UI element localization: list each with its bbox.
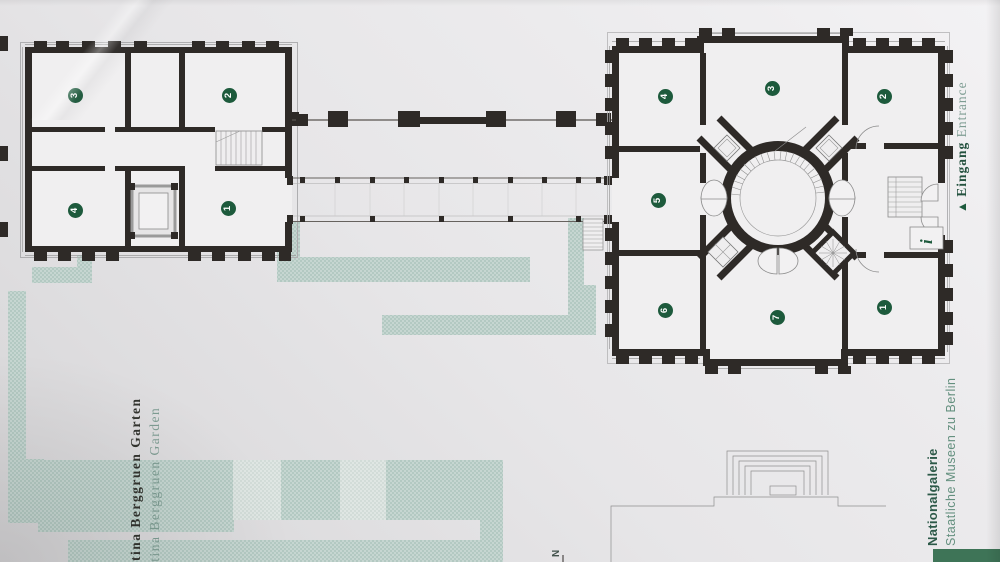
entrance-label: ▲ Eingang Entrance (954, 81, 970, 213)
north-label: N (551, 550, 562, 557)
room-marker: 3 (765, 81, 780, 96)
room-marker: 7 (770, 310, 785, 325)
west-wing (0, 36, 299, 261)
legend-banner (933, 549, 1000, 562)
garden-paths (8, 218, 596, 562)
elevator (128, 183, 178, 239)
room-marker: 2 (222, 88, 237, 103)
info-desk-box (910, 227, 943, 249)
staircase-west-wing (216, 131, 262, 165)
terrace-steps (611, 451, 886, 562)
map-photo: i Bettina Berggruen Garten Bettina Bergg… (0, 0, 1000, 562)
garden-label-en: Bettina Berggruen Garden (147, 407, 163, 562)
museum-title: Nationalgalerie (925, 448, 940, 546)
info-icon: i (917, 239, 936, 244)
room-marker: 5 (651, 193, 666, 208)
room-marker: 1 (877, 300, 892, 315)
room-marker: 2 (877, 89, 892, 104)
room-marker: 3 (68, 88, 83, 103)
room-marker: 6 (658, 303, 673, 318)
room-marker: 4 (68, 203, 83, 218)
institution-subtitle: Staatliche Museen zu Berlin (944, 378, 958, 546)
entrance-arrow-icon: ▲ (955, 201, 969, 213)
colonnade (292, 111, 612, 127)
staircase-hall (888, 177, 922, 217)
garden-label-de: Bettina Berggruen Garten (128, 398, 144, 562)
entrance-label-en: Entrance (954, 81, 969, 137)
entrance-label-de: Eingang (954, 142, 969, 197)
outdoor-staircase (583, 219, 603, 250)
pergola-walkway (287, 176, 612, 250)
room-marker: 1 (221, 201, 236, 216)
room-marker: 4 (658, 89, 673, 104)
